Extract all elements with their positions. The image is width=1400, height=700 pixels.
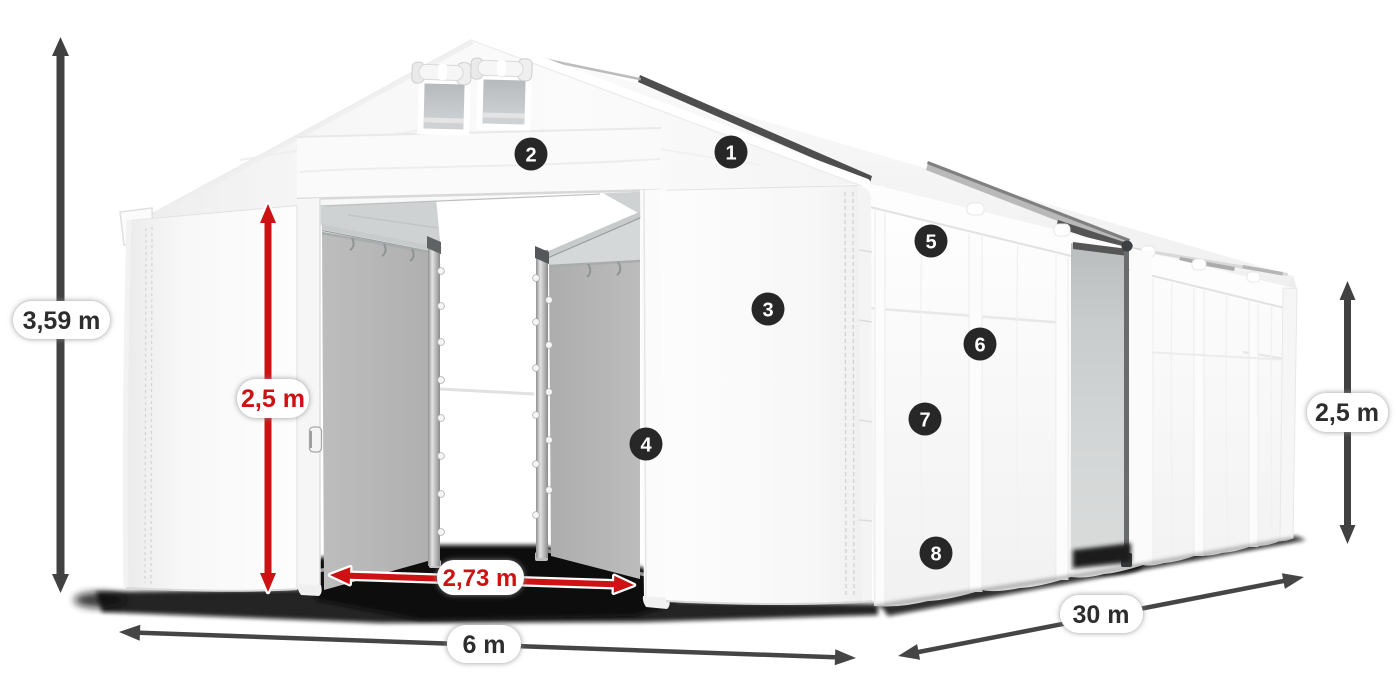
svg-text:30 m: 30 m [1073, 601, 1130, 629]
svg-text:3,59 m: 3,59 m [23, 307, 101, 335]
svg-text:7: 7 [919, 410, 930, 432]
svg-text:2,5 m: 2,5 m [241, 385, 305, 413]
svg-text:1: 1 [725, 143, 736, 165]
svg-text:5: 5 [925, 232, 936, 254]
svg-text:6 m: 6 m [462, 631, 505, 659]
svg-text:4: 4 [640, 435, 652, 457]
svg-text:3: 3 [762, 300, 773, 322]
svg-text:6: 6 [974, 335, 985, 357]
svg-text:2,73 m: 2,73 m [443, 565, 518, 592]
svg-text:8: 8 [930, 544, 941, 566]
svg-text:2,5 m: 2,5 m [1315, 399, 1379, 427]
svg-text:2: 2 [525, 145, 536, 167]
